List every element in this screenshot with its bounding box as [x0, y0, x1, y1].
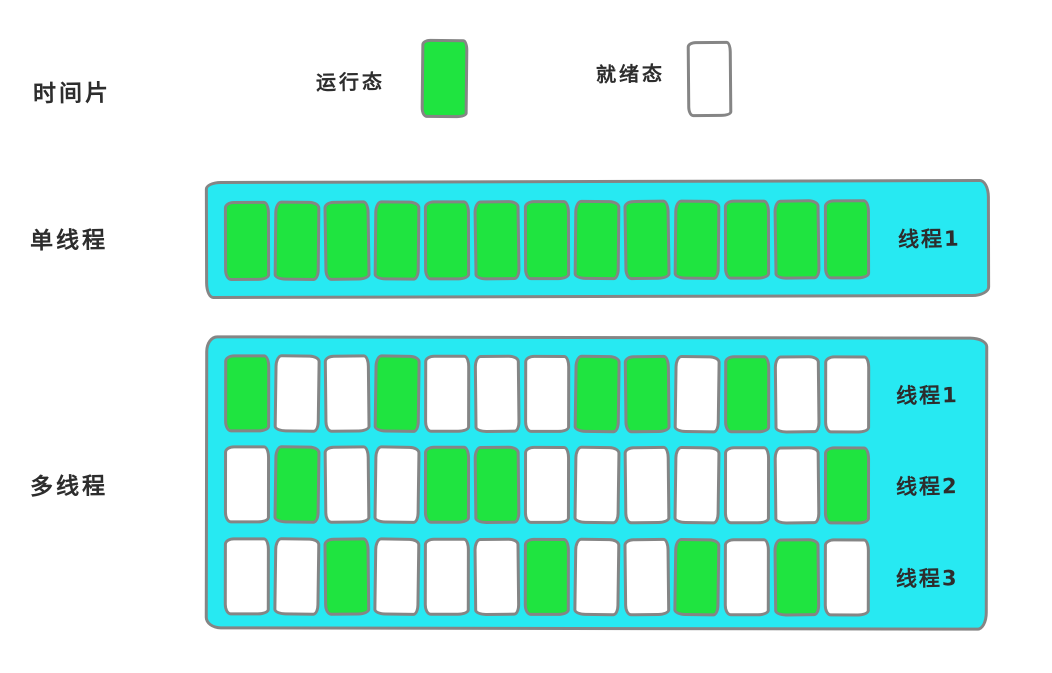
- timeline-row-thread-1: [224, 354, 870, 433]
- time-slice-cell-running: [624, 355, 671, 433]
- time-slice-cell-ready: [424, 355, 470, 433]
- thread-label-single-1: 线程1: [898, 223, 961, 254]
- time-slice-cell-ready: [473, 538, 520, 616]
- time-slice-cell-running: [773, 538, 820, 616]
- time-slice-cell-running: [424, 446, 470, 524]
- legend-ready-swatch: [687, 41, 733, 117]
- time-slice-cell-ready: [373, 445, 420, 524]
- time-slice-cell-ready: [573, 446, 620, 525]
- time-slice-cell-ready: [324, 445, 371, 523]
- time-slice-cell-running: [724, 355, 770, 433]
- diagram-canvas: 时间片 运行态 就绪态 单线程 线程1 多线程 线程1 线程2 线程3: [0, 0, 1052, 673]
- time-slice-cell-running: [673, 538, 720, 617]
- time-slice-cell-running: [574, 355, 621, 434]
- time-slice-cell-running: [473, 200, 520, 281]
- time-slice-cell-running: [224, 354, 270, 432]
- time-slice-cell-ready: [824, 355, 870, 433]
- time-slice-cell-ready: [774, 355, 821, 433]
- time-slice-cell-ready: [324, 354, 371, 432]
- time-slice-cell-running: [224, 201, 270, 281]
- time-slice-cell-running: [824, 199, 870, 279]
- timeline-row-thread-3: [224, 537, 870, 616]
- time-slice-cell-ready: [623, 538, 670, 616]
- time-slice-cell-ready: [573, 538, 620, 617]
- time-slice-cell-running: [824, 446, 870, 524]
- time-slice-cell-running: [773, 199, 820, 280]
- time-slice-cell-running: [323, 537, 370, 615]
- time-slice-cell-running: [524, 538, 570, 616]
- time-slice-cell-running: [323, 200, 370, 281]
- time-slice-cell-ready: [274, 354, 321, 433]
- time-slice-cell-ready: [373, 537, 420, 616]
- time-slice-cell-running: [374, 354, 421, 433]
- time-slice-cell-ready: [474, 355, 521, 433]
- time-slice-cell-running: [524, 200, 570, 280]
- time-slice-cell-ready: [273, 537, 320, 616]
- time-slice-cell-running: [374, 200, 421, 280]
- time-slice-cell-ready: [674, 355, 721, 434]
- thread-label-multi-1: 线程1: [896, 379, 959, 410]
- time-slice-cell-ready: [774, 446, 821, 524]
- timeline-row-thread-2: [224, 445, 870, 524]
- thread-label-multi-3: 线程3: [896, 562, 959, 593]
- time-slice-cell-running: [274, 201, 321, 281]
- time-slice-cell-running: [574, 200, 621, 280]
- time-slice-cell-ready: [224, 445, 270, 523]
- time-slice-cell-running: [674, 200, 721, 280]
- time-slice-cell-ready: [624, 446, 671, 524]
- time-slice-cell-ready: [424, 538, 470, 616]
- thread-label-multi-2: 线程2: [896, 470, 959, 501]
- time-slice-cell-running: [273, 445, 320, 524]
- time-slice-cell-ready: [724, 538, 770, 616]
- time-slice-cell-ready: [673, 446, 720, 525]
- legend-running-label: 运行态: [316, 65, 385, 95]
- time-slice-cell-ready: [524, 446, 570, 524]
- single-thread-band: 线程1: [205, 179, 990, 299]
- time-slice-cell-ready: [224, 537, 270, 615]
- time-slice-cell-running: [424, 200, 470, 280]
- single-thread-label: 单线程: [30, 220, 108, 255]
- time-slice-label: 时间片: [33, 73, 111, 108]
- time-slice-cell-ready: [524, 355, 570, 433]
- time-slice-cell-running: [724, 200, 770, 280]
- legend-ready-label: 就绪态: [596, 57, 665, 87]
- multi-thread-band: 线程1 线程2 线程3: [205, 335, 989, 630]
- time-slice-cell-ready: [724, 446, 770, 524]
- multi-thread-label: 多线程: [30, 466, 108, 501]
- time-slice-cell-running: [623, 200, 670, 281]
- timeline-row-single: [224, 199, 870, 281]
- legend-running-swatch: [421, 39, 469, 118]
- time-slice-cell-ready: [824, 538, 870, 616]
- time-slice-cell-running: [474, 446, 521, 524]
